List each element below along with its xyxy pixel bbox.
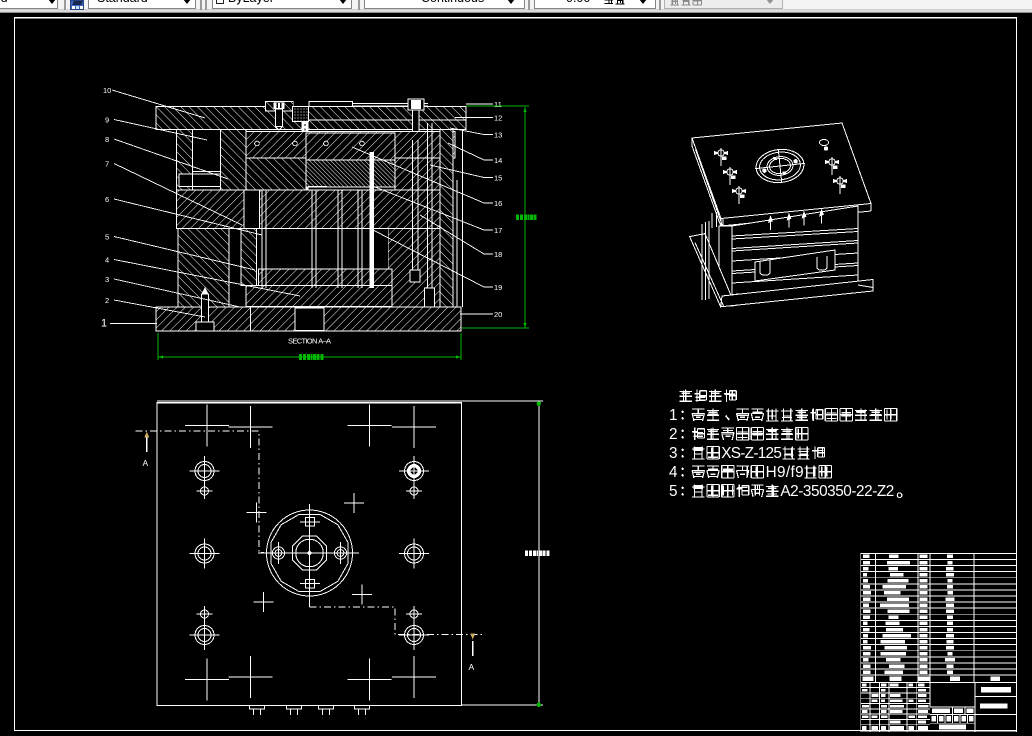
svg-text:4: 4 [669,464,678,481]
svg-text:5: 5 [105,233,109,242]
svg-text:18: 18 [494,250,502,259]
svg-text:3: 3 [105,275,109,284]
svg-text:20: 20 [494,310,502,319]
svg-text:16: 16 [494,199,502,208]
svg-text:14: 14 [494,156,502,165]
svg-text:3: 3 [669,445,678,462]
svg-text:17: 17 [494,226,502,235]
svg-text:11: 11 [494,100,502,109]
svg-text:8: 8 [105,135,109,144]
svg-text:19: 19 [494,283,502,292]
svg-text:A: A [143,458,149,468]
svg-text:5: 5 [669,483,678,500]
svg-text:SECTION A–A: SECTION A–A [288,337,331,346]
svg-text:13: 13 [494,131,502,140]
svg-text:2: 2 [105,296,109,305]
svg-text:1: 1 [101,318,107,330]
svg-text:9: 9 [105,116,109,125]
svg-text:A2-350350-22-Z2: A2-350350-22-Z2 [780,483,894,500]
svg-text:A: A [469,662,475,672]
svg-text:XS-Z-125: XS-Z-125 [721,445,782,462]
svg-text:H9/f9: H9/f9 [766,464,804,481]
svg-text:15: 15 [494,174,502,183]
svg-text:4: 4 [105,256,109,265]
svg-text:2: 2 [669,426,678,443]
svg-text:10: 10 [103,86,111,95]
svg-text:12: 12 [494,114,502,123]
svg-text:6: 6 [105,195,109,204]
svg-text:7: 7 [105,160,109,169]
svg-text:1: 1 [669,407,678,424]
